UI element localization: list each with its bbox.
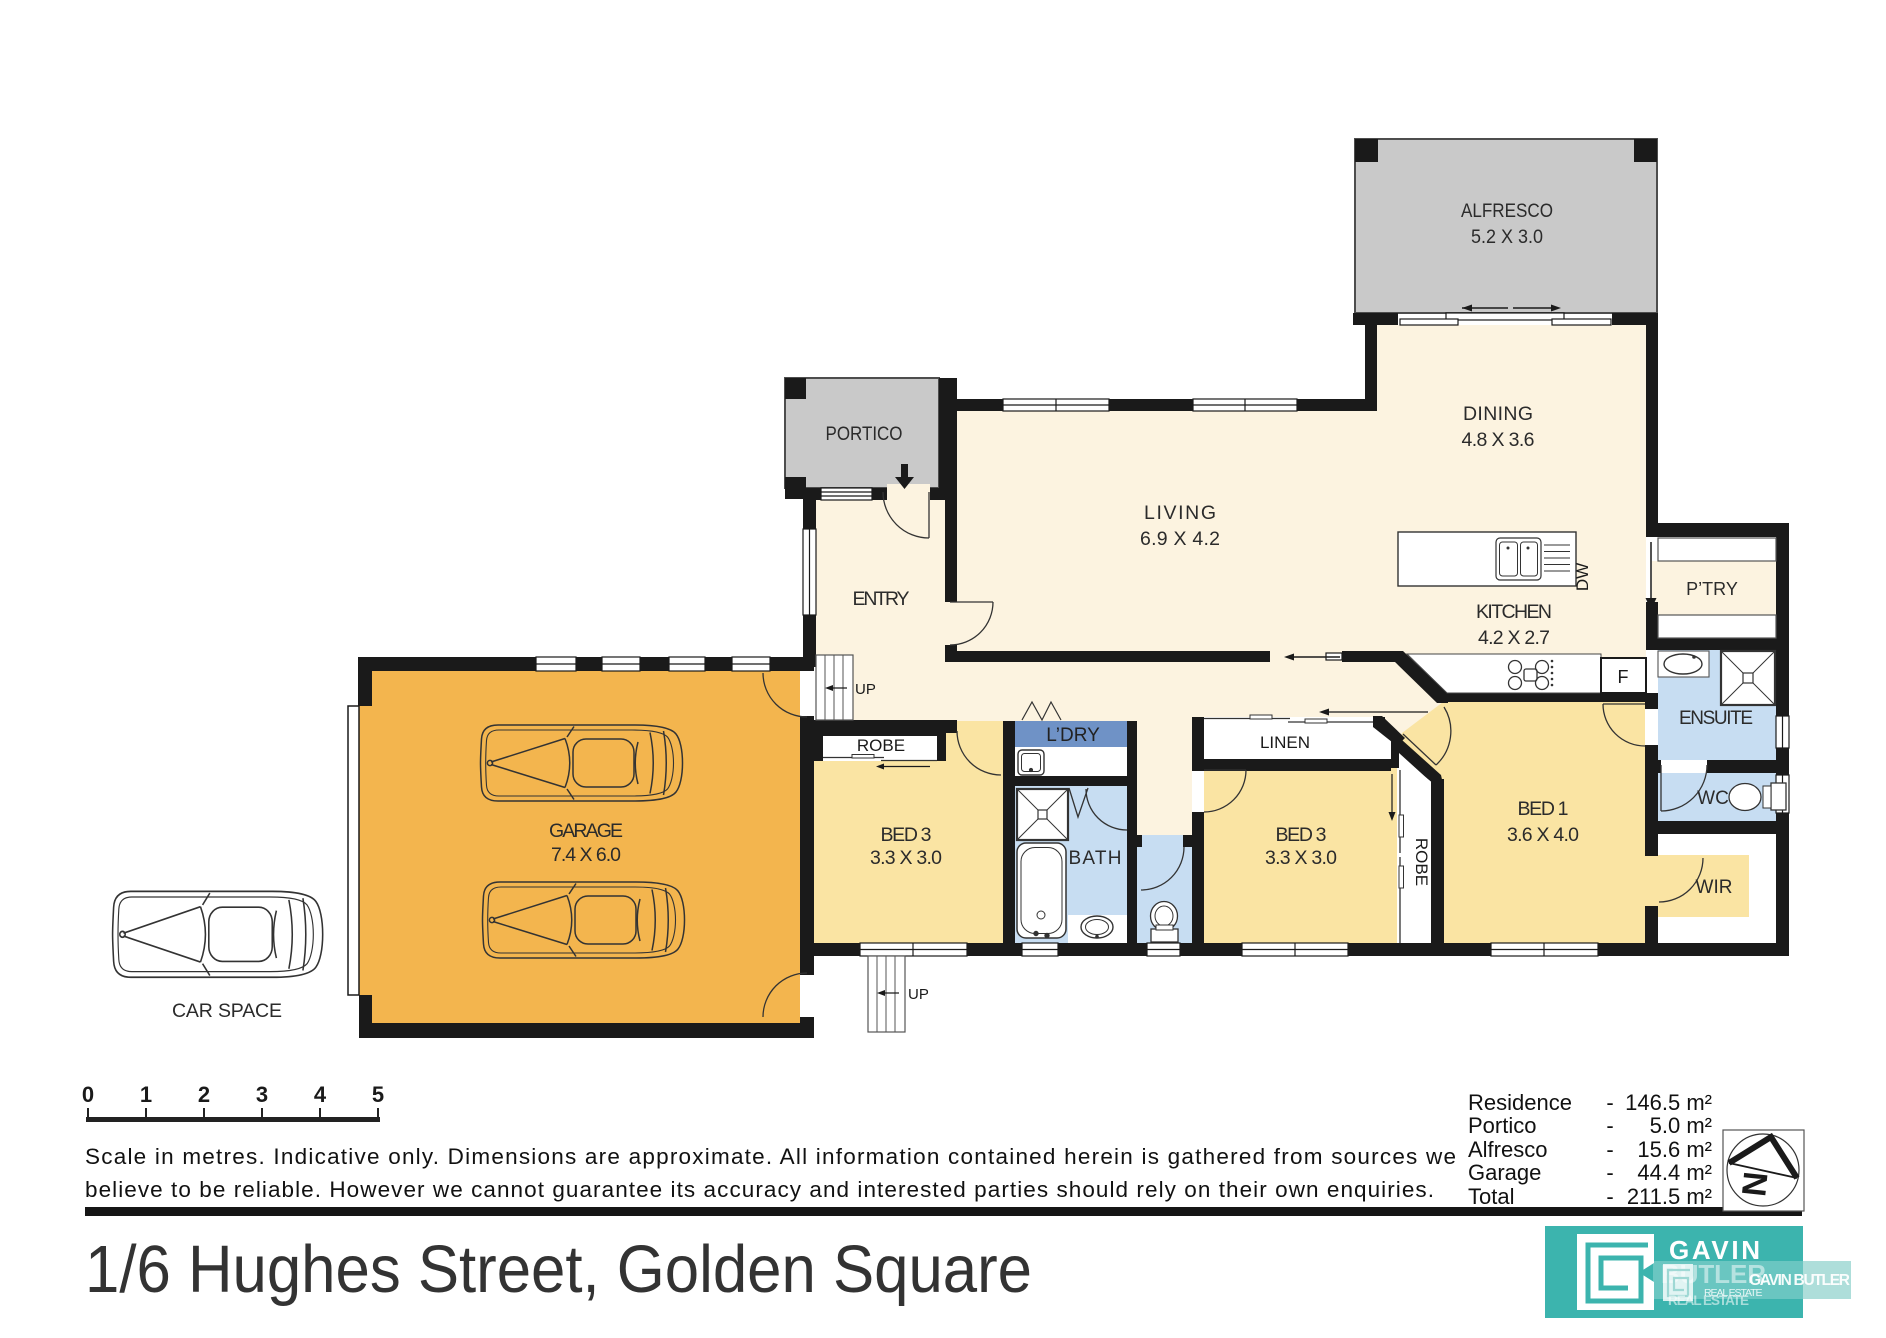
svg-text:ALFRESCO: ALFRESCO (1461, 200, 1553, 222)
svg-text:3: 3 (256, 1082, 268, 1107)
svg-text:UP: UP (855, 681, 876, 698)
svg-text:-: - (1606, 1090, 1613, 1115)
svg-text:LINEN: LINEN (1260, 733, 1310, 752)
svg-text:Portico: Portico (1468, 1113, 1536, 1138)
svg-text:6.9 X 4.2: 6.9 X 4.2 (1140, 528, 1220, 550)
svg-text:146.5 m²: 146.5 m² (1625, 1090, 1712, 1115)
svg-text:4.8 X 3.6: 4.8 X 3.6 (1462, 429, 1535, 451)
svg-text:DINING: DINING (1463, 403, 1533, 425)
svg-text:1/6 Hughes Street, Golden Squa: 1/6 Hughes Street, Golden Square (85, 1232, 1032, 1307)
svg-text:believe to be reliable. Howeve: believe to be reliable. However we canno… (85, 1177, 1434, 1202)
svg-text:2: 2 (198, 1082, 210, 1107)
svg-text:0: 0 (82, 1082, 94, 1107)
svg-text:GAVIN BUTLER: GAVIN BUTLER (1749, 1272, 1851, 1289)
svg-text:3.3 X 3.0: 3.3 X 3.0 (1265, 847, 1337, 869)
svg-text:4: 4 (314, 1082, 327, 1107)
svg-text:REAL ESTATE: REAL ESTATE (1668, 1293, 1751, 1308)
svg-text:ROBE: ROBE (1412, 838, 1431, 886)
svg-text:WIR: WIR (1696, 877, 1733, 898)
svg-text:BED 3: BED 3 (1276, 824, 1327, 846)
svg-text:Scale in metres. Indicative on: Scale in metres. Indicative only. Dimens… (85, 1144, 1456, 1169)
svg-text:ENTRY: ENTRY (853, 588, 910, 610)
svg-text:1: 1 (140, 1082, 152, 1107)
svg-text:LIVING: LIVING (1144, 502, 1216, 524)
svg-text:GARAGE: GARAGE (549, 820, 623, 842)
svg-text:3.3 X 3.0: 3.3 X 3.0 (870, 847, 942, 869)
svg-text:Alfresco: Alfresco (1468, 1137, 1547, 1162)
svg-text:DW: DW (1573, 563, 1592, 591)
svg-text:KITCHEN: KITCHEN (1476, 601, 1552, 623)
svg-text:5.0 m²: 5.0 m² (1650, 1113, 1712, 1138)
svg-text:BED 1: BED 1 (1518, 798, 1569, 820)
svg-text:15.6 m²: 15.6 m² (1637, 1137, 1712, 1162)
svg-text:7.4 X 6.0: 7.4 X 6.0 (551, 844, 621, 866)
svg-text:-: - (1606, 1137, 1613, 1162)
svg-text:WC: WC (1697, 788, 1729, 809)
svg-text:PORTICO: PORTICO (826, 423, 903, 445)
svg-text:211.5 m²: 211.5 m² (1627, 1184, 1712, 1209)
svg-text:ROBE: ROBE (857, 736, 905, 755)
svg-text:44.4 m²: 44.4 m² (1637, 1160, 1712, 1185)
svg-text:N: N (1734, 1170, 1774, 1198)
svg-text:L’DRY: L’DRY (1046, 725, 1100, 746)
svg-text:-: - (1606, 1160, 1613, 1185)
svg-text:BED 3: BED 3 (881, 824, 932, 846)
svg-text:ENSUITE: ENSUITE (1679, 708, 1753, 729)
svg-text:Residence: Residence (1468, 1090, 1572, 1115)
svg-text:5: 5 (372, 1082, 384, 1107)
svg-text:4.2 X 2.7: 4.2 X 2.7 (1478, 627, 1550, 649)
svg-text:BATH: BATH (1069, 848, 1122, 869)
svg-text:-: - (1606, 1113, 1613, 1138)
svg-text:UP: UP (908, 986, 929, 1003)
svg-text:P’TRY: P’TRY (1686, 579, 1738, 599)
svg-text:-: - (1606, 1184, 1613, 1209)
svg-text:3.6 X 4.0: 3.6 X 4.0 (1507, 824, 1579, 846)
svg-text:Total: Total (1468, 1184, 1514, 1209)
svg-text:Garage: Garage (1468, 1160, 1541, 1185)
svg-text:5.2 X 3.0: 5.2 X 3.0 (1471, 226, 1543, 248)
svg-text:CAR SPACE: CAR SPACE (172, 1000, 282, 1022)
svg-text:F: F (1618, 667, 1629, 687)
